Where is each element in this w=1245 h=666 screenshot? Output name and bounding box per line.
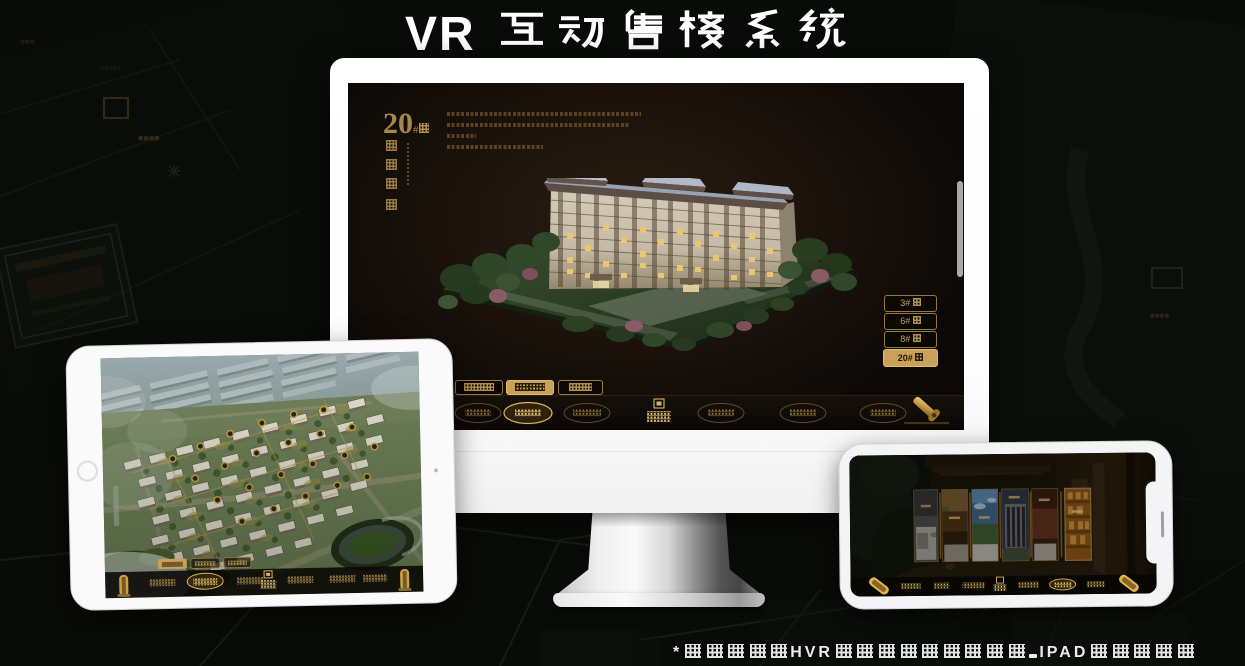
svg-text:■■■■■: ■■■■■: [100, 65, 121, 72]
svg-text:■■■■: ■■■■: [138, 133, 160, 143]
svg-text:VR: VR: [405, 8, 476, 57]
svg-text:■■■: ■■■: [20, 37, 35, 46]
svg-text:■■■■: ■■■■: [1150, 311, 1169, 320]
